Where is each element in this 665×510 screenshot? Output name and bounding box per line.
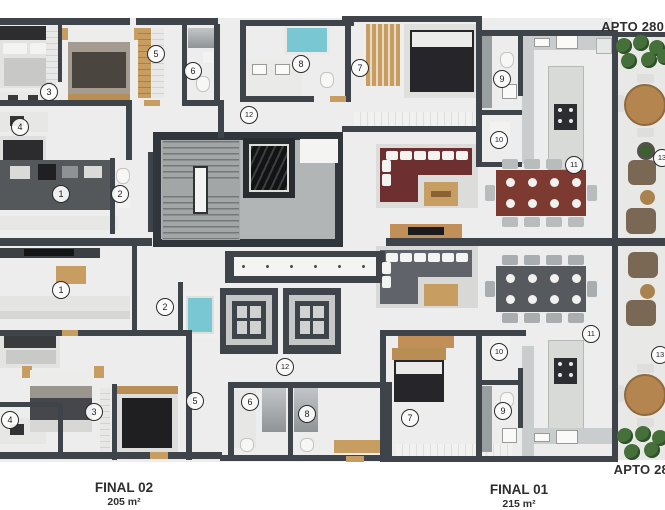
plant: [635, 426, 651, 442]
tv: [24, 249, 74, 256]
door: [62, 330, 78, 336]
lounge-chair: [626, 208, 656, 234]
bed-pillow: [412, 32, 472, 47]
wall: [132, 242, 137, 330]
sofa-bench: [0, 311, 130, 319]
plate: [550, 295, 559, 304]
wardrobe: [366, 24, 400, 86]
wall: [0, 18, 130, 25]
wall: [58, 404, 63, 458]
plate: [550, 199, 559, 208]
wall: [220, 455, 390, 461]
toilet: [116, 168, 130, 184]
room-marker: 9: [493, 70, 511, 88]
apartment-label-bottom: APTO 28: [614, 462, 665, 477]
toilet: [500, 52, 514, 68]
wall: [0, 402, 62, 407]
plant: [633, 35, 649, 51]
wall: [518, 36, 523, 96]
sofa-pillow: [428, 253, 440, 262]
plant: [641, 52, 657, 68]
corridor-door-dot: [290, 265, 293, 268]
room-marker: 12: [276, 358, 294, 376]
cooktop: [38, 164, 56, 180]
room-marker: 7: [351, 59, 369, 77]
sideboard: [398, 336, 454, 348]
service-shaft-marble: [251, 146, 287, 190]
wall: [476, 30, 618, 36]
washer: [502, 428, 517, 443]
bed-headboard: [392, 348, 446, 360]
planter-leaf: [640, 145, 652, 157]
patio-table: [624, 84, 665, 126]
wall: [380, 330, 386, 462]
wall: [148, 152, 153, 232]
tv: [408, 227, 444, 235]
bed-rail: [116, 386, 178, 394]
wall: [476, 330, 482, 462]
plate: [506, 199, 515, 208]
plate: [528, 274, 537, 283]
wardrobe: [138, 28, 151, 98]
dining-chair: [502, 217, 518, 227]
unit-name: FINAL 01: [459, 483, 579, 497]
sink: [534, 433, 550, 442]
dining-chair: [587, 185, 597, 201]
room-marker: 9: [494, 402, 512, 420]
dining-chair: [546, 159, 562, 169]
dining-chair: [502, 313, 518, 323]
door: [144, 100, 160, 106]
room-marker: 4: [1, 411, 19, 429]
wall: [182, 100, 220, 106]
burner: [558, 362, 562, 366]
wall: [612, 34, 618, 460]
counter-item: [62, 166, 78, 178]
bed-pillow: [3, 43, 27, 54]
plate: [506, 178, 515, 187]
sofa-pillow: [386, 253, 398, 262]
coffee-table: [424, 284, 458, 306]
wall: [386, 382, 392, 462]
plate: [550, 274, 559, 283]
room-marker: 10: [490, 343, 508, 361]
plate: [528, 295, 537, 304]
wall: [288, 386, 293, 458]
room-marker: 6: [184, 62, 202, 80]
dining-chair: [546, 255, 562, 265]
toilet: [320, 72, 334, 88]
wall: [136, 18, 218, 25]
wall: [112, 384, 117, 460]
room-marker: 2: [111, 185, 129, 203]
apartment-label-top: APTO 280: [601, 19, 664, 34]
dining-chair: [568, 255, 584, 265]
corridor-door-dot: [314, 265, 317, 268]
sofa-pillow: [414, 253, 426, 262]
sofa-pillow: [400, 253, 412, 262]
plate: [528, 199, 537, 208]
counter-item: [10, 166, 30, 179]
elevator-cross: [247, 306, 250, 334]
sink: [203, 52, 213, 63]
kitchen-island: [0, 216, 118, 230]
room-marker: 1: [52, 185, 70, 203]
burner: [569, 373, 573, 377]
nightstand: [94, 366, 104, 378]
dining-chair: [524, 313, 540, 323]
room-marker: 5: [147, 45, 165, 63]
plant: [617, 428, 633, 444]
dining-chair: [485, 281, 495, 297]
shower: [262, 388, 286, 432]
lounge-chair: [628, 252, 658, 278]
window-sill: [354, 112, 474, 126]
bed-blanket: [4, 58, 52, 86]
fridge: [596, 38, 612, 54]
plant: [644, 442, 660, 458]
lounge-chair: [628, 160, 656, 185]
sofa-pillow: [400, 151, 412, 160]
sofa-pillow: [442, 151, 454, 160]
wall: [240, 20, 354, 26]
sofa-pillow: [382, 262, 391, 274]
kitchen-counter: [522, 50, 534, 164]
wall: [0, 452, 222, 459]
corridor-door-dot: [242, 265, 245, 268]
room-marker: 4: [11, 118, 29, 136]
wall: [476, 380, 522, 385]
wall: [228, 382, 392, 388]
bench: [334, 440, 380, 453]
burner: [569, 362, 573, 366]
counter-item: [84, 166, 102, 178]
sink: [252, 64, 267, 75]
burner: [558, 119, 562, 123]
wall: [0, 238, 152, 246]
sink: [534, 38, 550, 47]
jacuzzi: [186, 296, 214, 334]
wall: [386, 238, 665, 246]
side-table: [640, 190, 655, 205]
toilet: [240, 438, 254, 452]
sofa-pillow: [428, 151, 440, 160]
burner: [569, 108, 573, 112]
dining-chair: [568, 313, 584, 323]
closet: [152, 28, 164, 98]
dining-chair: [587, 281, 597, 297]
bed-pillow: [30, 370, 92, 386]
dining-table: [496, 266, 586, 312]
unit-label-final-01: FINAL 01 215 m²: [459, 483, 579, 510]
room-marker: 13: [653, 149, 665, 167]
room-marker: 10: [490, 131, 508, 149]
bed-blanket: [122, 398, 172, 448]
elevator-cross: [310, 306, 313, 334]
room-marker: 8: [298, 405, 316, 423]
room-marker: 13: [651, 346, 665, 364]
bed-blanket: [72, 52, 126, 88]
dining-chair: [524, 255, 540, 265]
sink: [275, 64, 290, 75]
patio-chair: [637, 364, 654, 373]
patio-chair: [637, 128, 654, 137]
lounge-chair: [626, 300, 656, 326]
sofa-pillow: [414, 151, 426, 160]
plate: [550, 178, 559, 187]
wall: [218, 100, 224, 138]
dining-chair: [524, 217, 540, 227]
stove: [556, 35, 578, 49]
plant: [616, 38, 632, 54]
dining-chair: [502, 255, 518, 265]
wall: [126, 100, 132, 160]
room-marker: 2: [156, 298, 174, 316]
patio-table: [624, 374, 665, 416]
plate: [572, 199, 581, 208]
burner: [569, 119, 573, 123]
dining-chair: [502, 159, 518, 169]
bed-pillow: [68, 28, 130, 42]
wall: [345, 16, 351, 102]
stove: [556, 430, 578, 444]
patio-chair: [637, 74, 654, 83]
side-table: [640, 284, 655, 299]
bathtub: [284, 25, 330, 55]
plate: [572, 274, 581, 283]
dining-table: [496, 170, 586, 216]
bed-blanket: [6, 350, 56, 364]
unit-area: 215 m²: [459, 498, 579, 510]
wall: [58, 24, 62, 82]
room-marker: 1: [52, 281, 70, 299]
plate: [528, 178, 537, 187]
dining-chair: [568, 217, 584, 227]
plant: [624, 444, 640, 460]
floor-plan: 3456871291011131212121113104356879 APTO …: [0, 0, 665, 510]
corridor-door-dot: [362, 265, 365, 268]
room-marker: 12: [240, 106, 258, 124]
sofa-pillow: [382, 276, 391, 288]
wall: [240, 24, 246, 102]
door: [330, 96, 346, 102]
sofa-pillow: [382, 160, 391, 172]
sofa-bench: [0, 296, 130, 312]
stair-landing: [193, 166, 208, 214]
wall: [342, 16, 482, 22]
room-marker: 6: [241, 393, 259, 411]
plate: [506, 295, 515, 304]
toilet: [300, 438, 314, 452]
sofa-pillow: [456, 151, 468, 160]
sofa-pillow: [442, 253, 454, 262]
wall: [214, 24, 220, 106]
wall: [240, 96, 314, 102]
bed-pillow: [4, 336, 56, 348]
wall: [0, 100, 132, 106]
wall: [518, 368, 523, 428]
burner: [558, 108, 562, 112]
wall: [386, 330, 526, 336]
plant: [621, 53, 637, 69]
unit-label-final-02: FINAL 02 205 m²: [64, 481, 184, 508]
closet: [100, 388, 110, 452]
unit-name: FINAL 02: [64, 481, 184, 495]
plate: [572, 295, 581, 304]
unit-area: 205 m²: [64, 496, 184, 508]
shower: [188, 28, 214, 48]
wall: [476, 110, 522, 115]
wall: [178, 282, 183, 330]
sofa-pillow: [386, 151, 398, 160]
room-marker: 5: [186, 392, 204, 410]
wall: [228, 384, 234, 458]
room-marker: 3: [85, 403, 103, 421]
room-marker: 11: [565, 156, 583, 174]
corridor-floor: [234, 257, 376, 276]
wall: [476, 16, 482, 166]
sofa-pillow: [382, 174, 391, 186]
core-storage: [300, 139, 338, 163]
plate: [572, 178, 581, 187]
door: [346, 456, 364, 462]
room-marker: 8: [292, 55, 310, 73]
coffee-table-inset: [431, 191, 451, 197]
room-marker: 11: [582, 325, 600, 343]
window-sill: [396, 444, 512, 456]
dining-chair: [546, 313, 562, 323]
wall: [388, 456, 618, 462]
dining-chair: [546, 217, 562, 227]
dining-chair: [485, 185, 495, 201]
burner: [558, 373, 562, 377]
bed-pillow: [396, 362, 442, 374]
room-marker: 7: [401, 409, 419, 427]
sofa-pillow: [456, 253, 468, 262]
plate: [506, 274, 515, 283]
door: [150, 452, 168, 459]
room-marker: 3: [40, 83, 58, 101]
closet: [46, 26, 58, 82]
corridor-door-dot: [338, 265, 341, 268]
wall: [342, 126, 482, 132]
corridor-door-dot: [266, 265, 269, 268]
wall: [0, 330, 192, 336]
dining-chair: [524, 159, 540, 169]
